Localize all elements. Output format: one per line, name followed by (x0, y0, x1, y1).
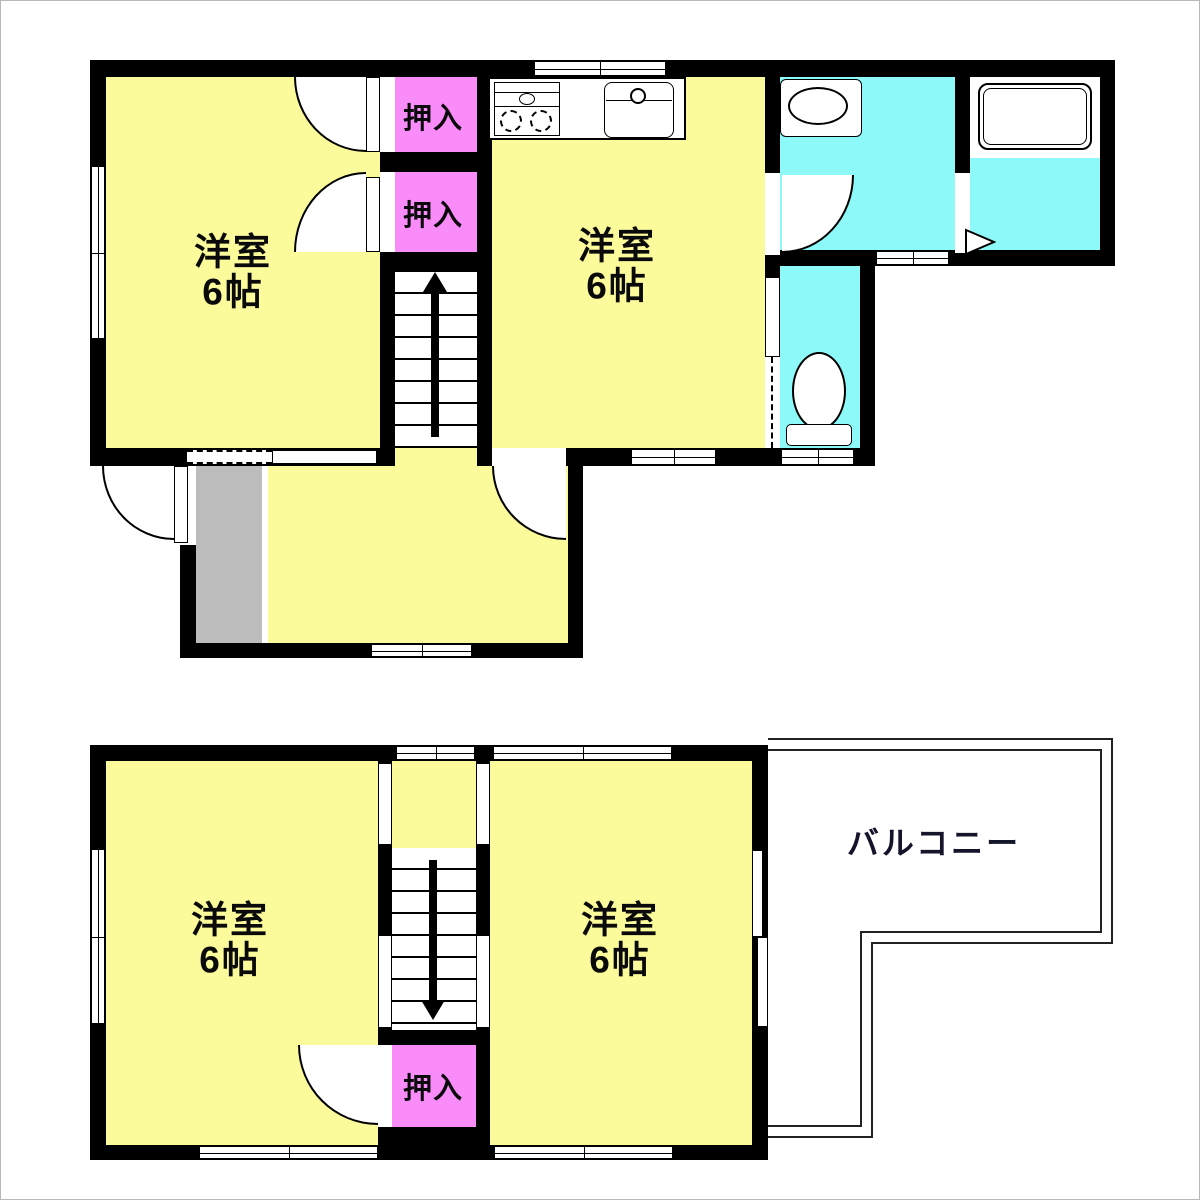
closet-label: 押入 (403, 192, 463, 234)
bath-door-icon (964, 228, 996, 256)
opening-dashed (187, 450, 272, 464)
sliding-door (765, 277, 780, 357)
stair-rail (378, 935, 392, 1028)
window (533, 60, 667, 77)
arrow-up-icon (423, 272, 447, 292)
balcony-sliding-door (757, 937, 768, 1027)
bathtub-inner (983, 88, 1087, 145)
wall (380, 152, 492, 172)
window (90, 165, 106, 340)
stair-opening (395, 448, 477, 466)
room-label: 洋室 6帖 (578, 226, 656, 305)
burner-icon (530, 110, 552, 132)
window (370, 643, 473, 658)
room-size: 6帖 (191, 940, 269, 980)
window (395, 745, 476, 761)
closet-label: 押入 (403, 1065, 463, 1107)
balcony-label: バルコニー (847, 818, 1021, 864)
room-size: 6帖 (194, 272, 272, 312)
room-label: 洋室 6帖 (581, 900, 659, 979)
window (493, 1145, 674, 1160)
room-name: 洋室 (578, 226, 656, 266)
room-name: 洋室 (191, 900, 269, 940)
toilet-icon (792, 352, 846, 430)
room-name: 洋室 (194, 232, 272, 272)
sliding-door (476, 763, 490, 845)
sliding-door (378, 763, 392, 845)
door-opening (492, 448, 566, 466)
stair-hall-2f (392, 761, 476, 848)
stove-knob-icon (519, 93, 535, 105)
floor-plan-canvas: 洋室 6帖 洋室 6帖 押入 押入 (0, 0, 1200, 1200)
window (90, 848, 106, 1025)
room-label: 洋室 6帖 (194, 232, 272, 311)
closet-label: 押入 (403, 95, 463, 137)
balcony-outline (760, 735, 1120, 1145)
arrow-down-icon (421, 1000, 445, 1020)
window (198, 1145, 379, 1160)
wall (380, 252, 492, 272)
room-label: 洋室 6帖 (191, 900, 269, 979)
window (630, 448, 717, 466)
wall (568, 466, 583, 658)
dashed-line (771, 357, 773, 448)
window (780, 448, 855, 466)
entrance-door-leaf (174, 466, 188, 543)
faucet-icon (630, 88, 646, 104)
room-size: 6帖 (581, 940, 659, 980)
door-leaf (366, 77, 380, 152)
stairs-up-arrow (431, 292, 439, 437)
toilet-tank-icon (786, 424, 852, 446)
wall (380, 272, 395, 466)
sliding-door (272, 450, 377, 464)
room-size: 6帖 (578, 266, 656, 306)
floor-plan-page: { "floor1": { "room_left": {"name": "洋室"… (0, 0, 1200, 1200)
stove-line (495, 106, 559, 107)
stairs-down-arrow (429, 860, 437, 1000)
sliding-door-track (765, 357, 780, 448)
wall (1100, 60, 1115, 266)
stair-rail (476, 935, 490, 1028)
room-name: 洋室 (581, 900, 659, 940)
genkan-floor (196, 466, 262, 643)
vanity-basin-icon (788, 87, 848, 125)
wall (378, 1030, 490, 1045)
balcony-sliding-door (752, 850, 763, 937)
burner-icon (500, 110, 522, 132)
window (492, 745, 673, 761)
door-leaf (366, 177, 380, 252)
door-opening (378, 1045, 392, 1125)
entrance-door-swing (102, 466, 174, 540)
wall (378, 1127, 490, 1160)
door-opening (765, 173, 780, 255)
wall (860, 266, 875, 448)
window (875, 250, 950, 266)
